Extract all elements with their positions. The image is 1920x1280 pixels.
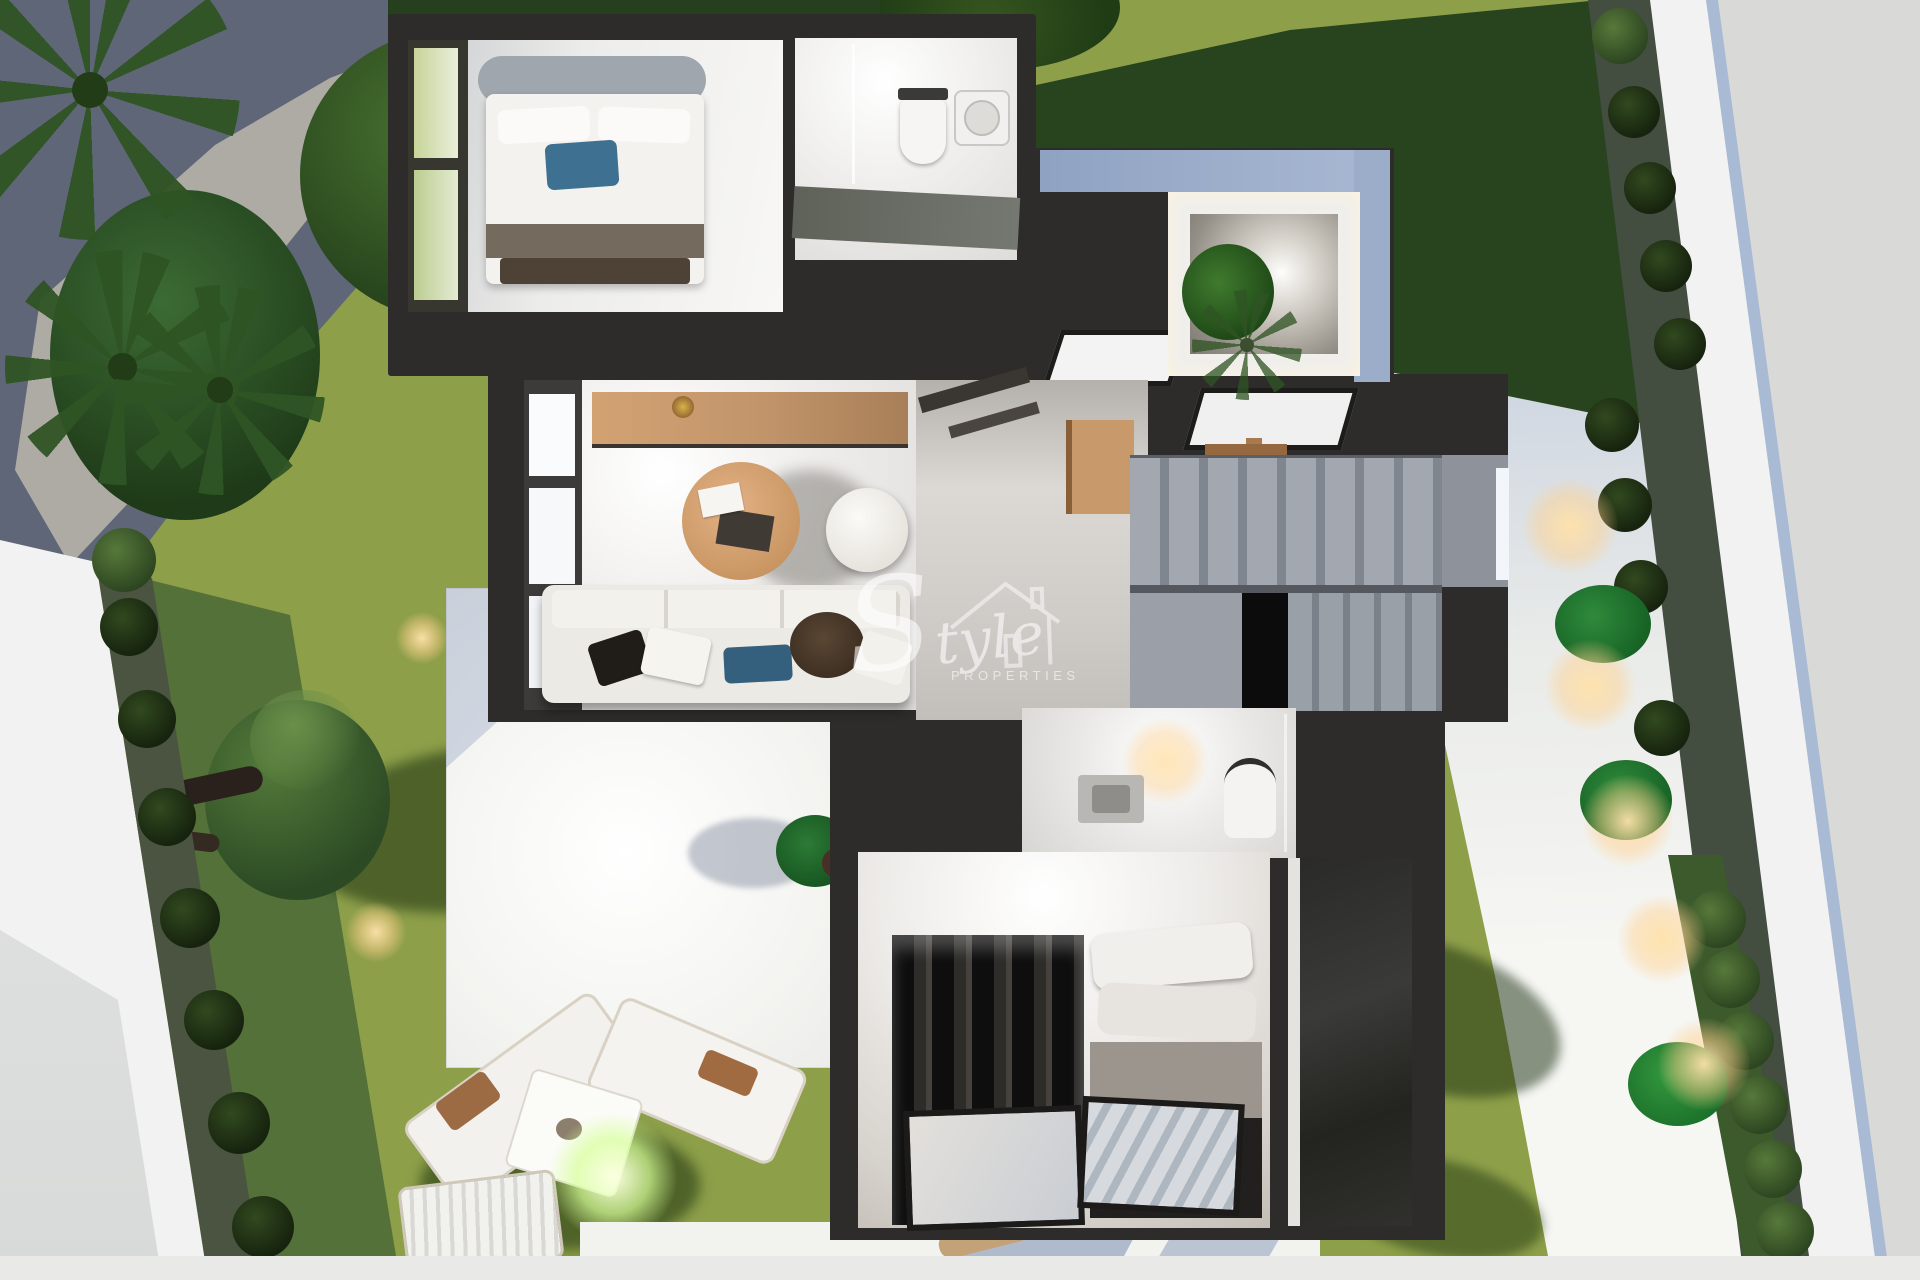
bush <box>100 598 158 656</box>
wall-light-glow <box>1522 478 1618 574</box>
window-glass <box>529 488 575 584</box>
glass-wardrobe-room <box>1300 858 1412 1226</box>
marble-wall-strip <box>1288 858 1300 1226</box>
bed-pillow <box>597 106 690 143</box>
wall-light-glow <box>1582 775 1674 867</box>
stairwell-void <box>1242 593 1288 711</box>
washbasin-bowl <box>1092 785 1130 813</box>
framed-artwork <box>903 1105 1085 1231</box>
toilet-cistern <box>898 88 948 100</box>
bush <box>138 788 196 846</box>
bush <box>184 990 244 1050</box>
bush <box>1654 318 1706 370</box>
bed-pillow <box>497 106 591 145</box>
window-glass <box>529 394 575 476</box>
bed-bench <box>500 258 690 284</box>
bush <box>1585 398 1639 452</box>
garden-light-glow <box>346 902 406 962</box>
bush <box>1640 240 1692 292</box>
house-outline-icon <box>943 572 1066 676</box>
stairs-side-floor <box>1130 593 1242 711</box>
wall-light-glow <box>1658 1018 1750 1110</box>
wall-light-glow <box>1618 895 1706 983</box>
street-band <box>0 1256 1920 1280</box>
console-table-wood <box>1066 420 1134 514</box>
sideboard-plant <box>672 396 694 418</box>
bush <box>1592 8 1648 64</box>
skylight <box>1183 388 1359 450</box>
watermark: Style PROPERTIES <box>845 552 1105 712</box>
watermark-brand-caps: PROPERTIES <box>951 668 1080 683</box>
bush <box>232 1196 294 1258</box>
window-glass-garden-view <box>414 170 458 300</box>
bush <box>1624 162 1676 214</box>
framed-artwork <box>1077 1096 1245 1216</box>
tree-canopy-detail <box>250 690 360 790</box>
hedge-bush <box>1756 1202 1814 1260</box>
sofa-pillow-blue <box>723 644 793 684</box>
bush <box>1634 700 1690 756</box>
hedge-bush <box>1744 1140 1802 1198</box>
bush <box>1608 86 1660 138</box>
washbasin-bowl <box>964 100 1000 136</box>
courtyard-walkway-band <box>1040 150 1390 192</box>
villa-floorplan-render: Style PROPERTIES <box>0 0 1920 1280</box>
window-glass-garden-view <box>414 48 458 158</box>
garden-light-glow <box>396 612 448 664</box>
wood-sideboard <box>592 392 908 448</box>
bed-pillow-blue <box>544 140 619 191</box>
bush <box>92 528 156 592</box>
courtyard-grass-plant <box>1192 290 1302 400</box>
bed-throw <box>486 224 704 258</box>
bed-pillow <box>1097 982 1258 1042</box>
shower-glass-screen <box>852 44 855 184</box>
stairs-railing <box>1130 585 1442 593</box>
wall-light-glow <box>1544 640 1636 732</box>
stairs-upper-flight <box>1130 455 1442 590</box>
toilet <box>900 98 946 164</box>
palm-tree <box>115 285 325 495</box>
shower-glass-screen <box>1284 714 1287 852</box>
bush <box>160 888 220 948</box>
bush <box>208 1092 270 1154</box>
hedge-bush <box>1702 950 1760 1008</box>
bush <box>118 690 176 748</box>
toilet <box>1224 758 1276 838</box>
stair-window-slit <box>1496 468 1509 580</box>
stairs-lower-flight <box>1288 593 1442 711</box>
